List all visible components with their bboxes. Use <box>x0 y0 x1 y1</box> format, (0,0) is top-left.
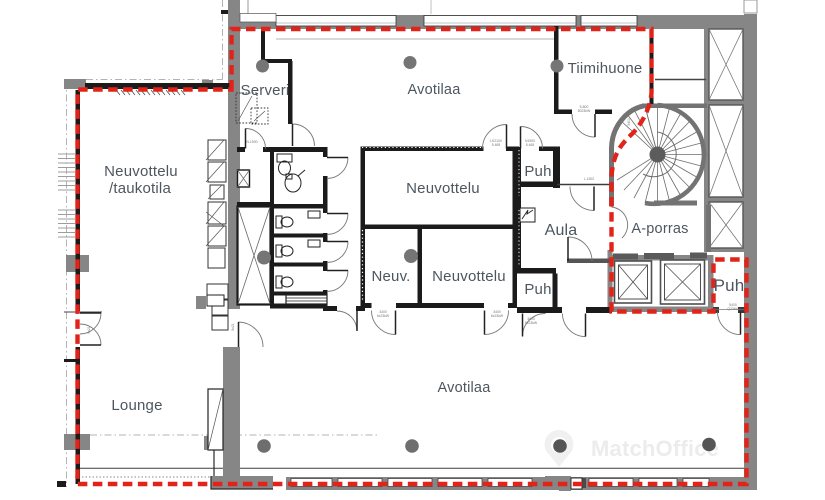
svg-text:N.1500: N.1500 <box>247 140 258 144</box>
svg-text:Neuv.: Neuv. <box>371 268 410 285</box>
svg-text:Neuvottelu: Neuvottelu <box>104 163 178 180</box>
svg-text:9x21: 9x21 <box>231 323 235 330</box>
svg-text:6x23kW: 6x23kW <box>377 314 390 318</box>
svg-text:Avotilaa: Avotilaa <box>438 380 492 396</box>
svg-text:5400: 5400 <box>627 118 631 126</box>
svg-text:Avotilaa: Avotilaa <box>408 82 462 98</box>
svg-text:5.465: 5.465 <box>526 143 535 147</box>
svg-text:5.465: 5.465 <box>492 143 501 147</box>
svg-text:6x23kW: 6x23kW <box>525 321 538 325</box>
svg-text:MatchOffice: MatchOffice <box>591 436 719 461</box>
svg-text:Q23kW: Q23kW <box>727 307 739 311</box>
svg-text:L.1302: L.1302 <box>584 177 594 181</box>
svg-text:6x23kW: 6x23kW <box>491 314 504 318</box>
svg-text:Neuvottelu: Neuvottelu <box>406 180 480 197</box>
svg-text:Neuvottelu: Neuvottelu <box>432 268 506 285</box>
svg-text:A-porras: A-porras <box>631 221 688 237</box>
svg-text:Puh: Puh <box>524 281 551 298</box>
svg-text:9x21: 9x21 <box>87 326 91 333</box>
svg-text:Aula: Aula <box>545 222 578 239</box>
svg-text:8023kW: 8023kW <box>578 109 591 113</box>
svg-text:Puh: Puh <box>524 163 551 180</box>
svg-text:Tiimihuone: Tiimihuone <box>568 60 643 77</box>
svg-text:Serveri: Serveri <box>241 82 290 99</box>
svg-text:/taukotila: /taukotila <box>109 180 171 197</box>
svg-text:Lounge: Lounge <box>111 397 162 414</box>
svg-text:Puh: Puh <box>714 276 745 295</box>
